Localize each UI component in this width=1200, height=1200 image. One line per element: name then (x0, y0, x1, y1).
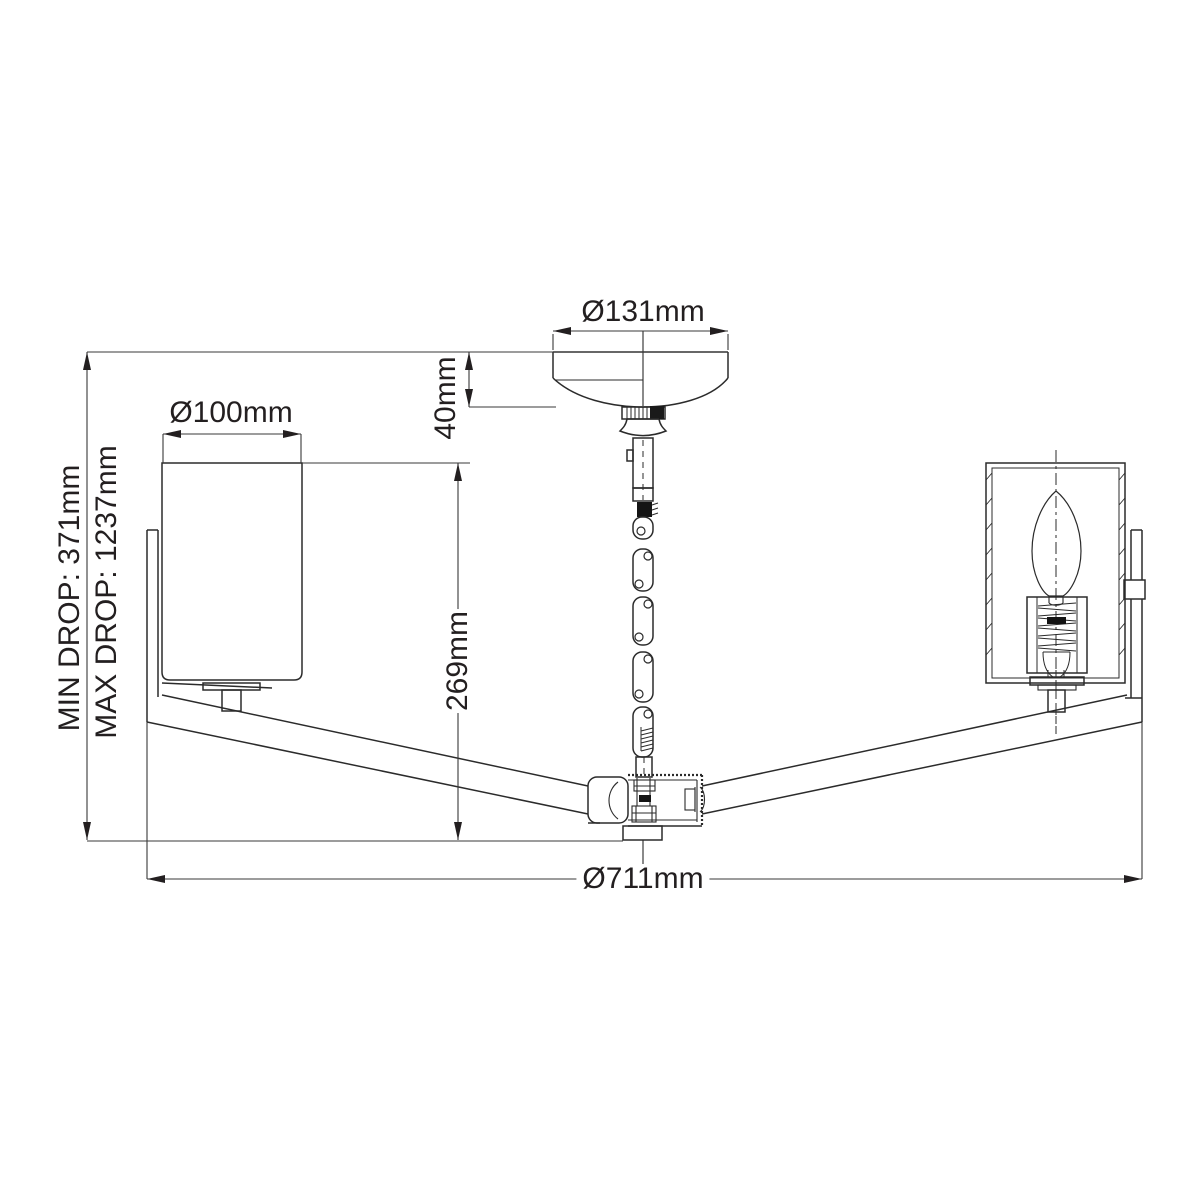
knurl-dark-section (650, 406, 664, 419)
label-min-drop: MIN DROP: 371mm (55, 465, 85, 732)
arrow-up (465, 352, 473, 370)
canopy-bell-fitting (620, 419, 666, 436)
left-arm (147, 695, 588, 814)
knurl-lines (627, 407, 647, 419)
left-shade-assembly (147, 463, 302, 722)
arrow-right (1124, 875, 1142, 883)
label-shade-diameter: Ø100mm (169, 398, 292, 428)
arrow-left (163, 430, 181, 438)
arrow-down (465, 389, 473, 407)
hub-left-cap (588, 777, 628, 823)
right-backplate-strip (1125, 530, 1142, 722)
arrow-up (454, 463, 462, 481)
backplate-key-square (1124, 580, 1145, 599)
arrow-left (147, 875, 165, 883)
chain-link-4 (633, 707, 653, 757)
arrow-right (710, 327, 728, 335)
label-overall-diameter: Ø711mm (576, 864, 709, 894)
arrow-down (83, 822, 91, 840)
central-hub (588, 775, 705, 865)
dim-shade-diameter-100 (163, 430, 301, 463)
label-canopy-diameter: Ø131mm (581, 297, 704, 327)
label-body-drop: 269mm (439, 609, 477, 713)
canopy-sides (553, 352, 728, 378)
dim-drop-range (83, 352, 623, 841)
grub-screw-block (637, 502, 652, 517)
arrow-right (283, 430, 301, 438)
left-backplate-strip (147, 530, 158, 722)
holder-contact-block (1047, 617, 1066, 624)
left-shade (162, 463, 302, 680)
hub-side-boss (685, 789, 695, 810)
fixture-line-drawing (0, 0, 1200, 1200)
label-max-drop: MAX DROP: 1237mm (92, 445, 122, 738)
arrow-left (553, 327, 571, 335)
grub-screw-hatch (652, 503, 658, 515)
ceiling-canopy (553, 331, 728, 436)
canopy-bowl (553, 378, 728, 407)
arrow-up (83, 352, 91, 370)
label-canopy-height: 40mm (431, 356, 461, 439)
hub-bottom-plate (623, 826, 662, 840)
loop-eyelet (637, 527, 645, 535)
dimension-diagram: Ø131mm 40mm Ø100mm 269mm MIN DROP: 371mm… (0, 0, 1200, 1200)
arrow-down (454, 822, 462, 840)
dim-canopy-diameter-131 (553, 327, 728, 350)
hub-cap-inner-arc (609, 782, 618, 819)
right-arm (702, 695, 1142, 814)
suspension-chain (627, 438, 658, 777)
threaded-section (641, 727, 653, 751)
right-shade-assembly (986, 450, 1145, 734)
hub-lock-block (639, 795, 651, 802)
holder-threads (1038, 603, 1076, 651)
rod-side-tab (627, 450, 633, 461)
